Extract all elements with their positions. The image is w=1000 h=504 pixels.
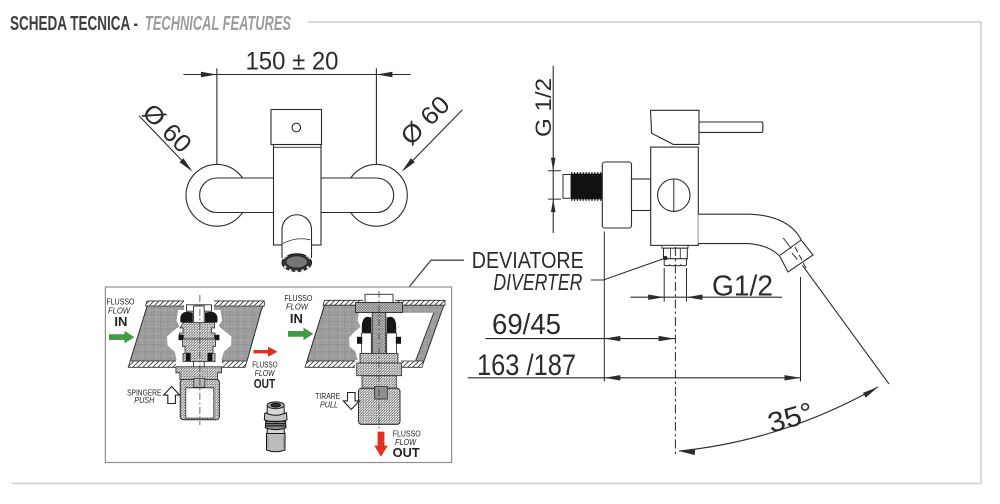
svg-text:IN: IN xyxy=(290,312,303,326)
svg-text:SCHEDA TECNICA -: SCHEDA TECNICA - xyxy=(10,12,138,35)
svg-text:163 /187: 163 /187 xyxy=(477,349,576,382)
svg-text:PUSH: PUSH xyxy=(134,395,155,405)
svg-text:DIVERTER: DIVERTER xyxy=(493,269,582,295)
svg-text:G 1/2: G 1/2 xyxy=(531,78,556,137)
svg-text:G1/2: G1/2 xyxy=(712,271,773,303)
svg-text:150 ± 20: 150 ± 20 xyxy=(246,48,339,76)
svg-text:FLOW: FLOW xyxy=(286,302,309,312)
svg-text:FLOW: FLOW xyxy=(108,306,131,316)
svg-text:OUT: OUT xyxy=(254,377,276,391)
svg-text:OUT: OUT xyxy=(393,446,420,460)
svg-text:TECHNICAL FEATURES: TECHNICAL FEATURES xyxy=(145,12,291,35)
svg-text:PULL: PULL xyxy=(320,400,338,410)
svg-text:IN: IN xyxy=(114,315,127,329)
svg-text:69/45: 69/45 xyxy=(492,309,561,341)
